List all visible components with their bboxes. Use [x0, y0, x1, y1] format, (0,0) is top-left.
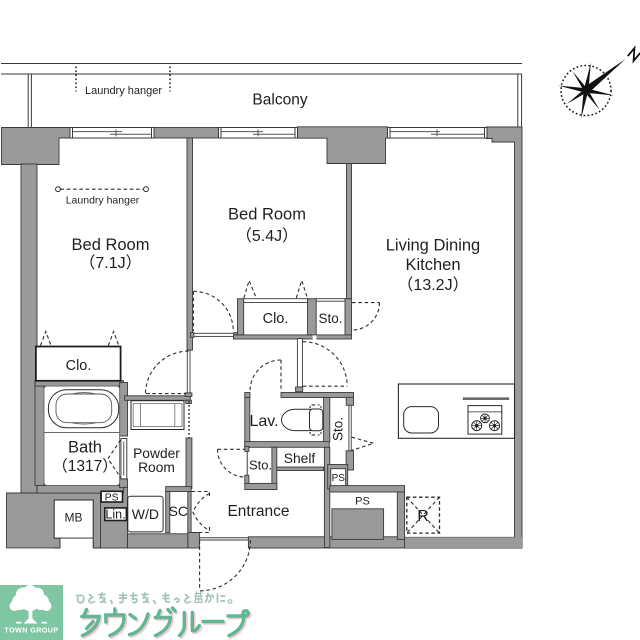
svg-text:Bed Room: Bed Room	[72, 236, 150, 254]
svg-text:Laundry hanger: Laundry hanger	[85, 85, 162, 97]
svg-text:Bed Room: Bed Room	[228, 206, 306, 224]
svg-text:Sto.: Sto.	[249, 458, 272, 473]
svg-text:Lin.: Lin.	[105, 508, 125, 522]
svg-text:PS: PS	[332, 473, 346, 484]
svg-text:Bath: Bath	[68, 439, 102, 457]
svg-text:（7.1J）: （7.1J）	[79, 254, 141, 272]
svg-text:Laundry hanger: Laundry hanger	[66, 195, 140, 207]
svg-text:Living Dining: Living Dining	[386, 237, 480, 255]
svg-text:R: R	[417, 508, 429, 525]
svg-text:Powder: Powder	[133, 446, 180, 461]
svg-text:Clo.: Clo.	[263, 311, 289, 327]
svg-text:PS: PS	[355, 496, 370, 508]
svg-text:Sto.: Sto.	[318, 311, 342, 326]
svg-text:Lav.: Lav.	[249, 413, 278, 430]
svg-text:Room: Room	[138, 460, 175, 475]
svg-text:W/D: W/D	[132, 506, 159, 522]
svg-text:Kitchen: Kitchen	[405, 256, 460, 274]
svg-text:SC: SC	[169, 503, 188, 519]
svg-text:Balcony: Balcony	[252, 92, 307, 109]
svg-text:Entrance: Entrance	[227, 503, 289, 520]
svg-text:Clo.: Clo.	[66, 358, 92, 374]
svg-text:Sto.: Sto.	[331, 417, 346, 441]
svg-text:（5.4J）: （5.4J）	[236, 227, 298, 245]
svg-text:TOWN GROUP: TOWN GROUP	[4, 626, 58, 635]
svg-text:（13.2J）: （13.2J）	[397, 276, 468, 294]
svg-text:Shelf: Shelf	[284, 451, 316, 466]
svg-text:MB: MB	[65, 511, 83, 525]
svg-text:PS: PS	[105, 492, 119, 504]
svg-text:（1317）: （1317）	[52, 458, 117, 475]
